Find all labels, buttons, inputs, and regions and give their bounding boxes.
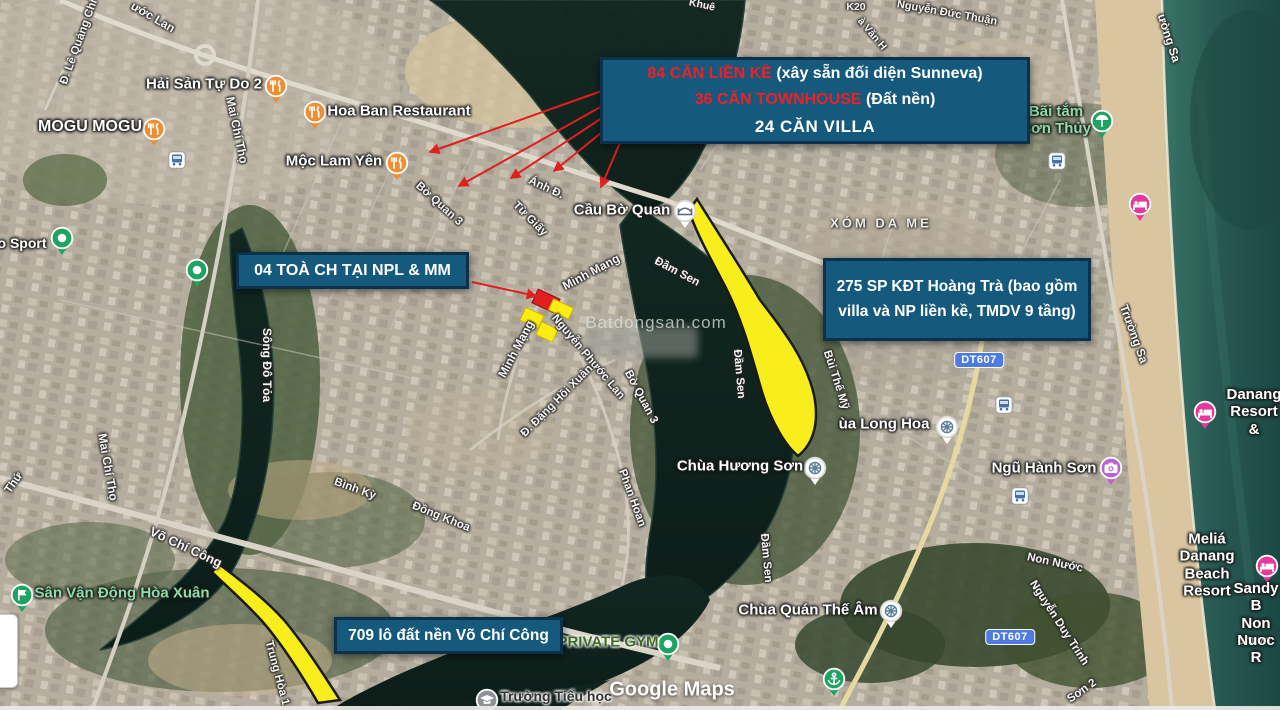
dharma-icon[interactable]	[935, 415, 959, 450]
image-edge-strip	[0, 706, 1280, 710]
bus-icon[interactable]	[168, 151, 186, 174]
bus-icon[interactable]	[1048, 152, 1066, 175]
hotel-icon[interactable]	[1128, 192, 1152, 227]
dharma-icon[interactable]	[803, 456, 827, 491]
road-label: à Văn H	[855, 15, 889, 52]
dharma-icon[interactable]	[879, 599, 903, 634]
road-label: Nguyễn Duy Trinh	[1027, 578, 1091, 667]
callout-text: 709 lô đất nền Võ Chí Công	[348, 627, 549, 645]
road-label: Bình Kỳ	[333, 476, 378, 502]
pin-icon[interactable]	[656, 632, 680, 667]
hotel-icon[interactable]	[1193, 400, 1217, 435]
callout-red-text: 84 CĂN LIỀN KỀ	[647, 65, 771, 82]
road-label: Bờ Quan 3	[413, 180, 465, 228]
road-label: Phan Hoan	[616, 468, 648, 529]
callout-line: 36 CĂN TOWNHOUSE (Đất nền)	[603, 87, 1027, 113]
road-label: Nguyễn Đức Thuận	[896, 0, 998, 28]
poi-label[interactable]: Hải Sản Tự Do 2	[146, 75, 262, 92]
callout-line: 84 CĂN LIỀN KỀ (xây sẵn đối diện Sunneva…	[603, 61, 1027, 87]
poi-label[interactable]: Mộc Lam Yên	[286, 152, 382, 169]
callout-vo-chi-cong: 709 lô đất nền Võ Chí Công	[334, 617, 563, 654]
road-label: Đ. Đặng Hồi Xuân	[519, 363, 596, 440]
road-label: K20	[846, 1, 865, 13]
callout-red-text: 36 CĂN TOWNHOUSE	[695, 91, 862, 108]
map-canvas[interactable]: Hải Sản Tự Do 2MOGU MOGUHoa Ban Restaura…	[0, 0, 1280, 710]
road-label: Võ Chí Công	[147, 524, 224, 571]
road-label: Đầm Sen	[758, 533, 774, 583]
restaurant-icon[interactable]	[303, 100, 327, 135]
poi-label[interactable]: Trường Tiểu học	[500, 688, 612, 704]
road-label: Bờ Quan 3	[622, 368, 660, 425]
harbor-icon[interactable]	[822, 667, 846, 702]
road-label: Mai Chí Thọ	[95, 432, 121, 501]
route-badge: DT607	[954, 352, 1004, 368]
bus-icon[interactable]	[1011, 487, 1029, 510]
road-label: Đầm Sen	[652, 255, 701, 289]
callout-text: 275 SP KĐT Hoàng Trà (bao gồm	[826, 275, 1088, 300]
callout-npl-mm: 04 TOÀ CH TẠI NPL & MM	[236, 252, 469, 289]
poi-label[interactable]: Chùa Hương Sơn	[677, 457, 803, 474]
road-label: ước Lan	[128, 0, 177, 35]
bus-icon[interactable]	[995, 396, 1013, 419]
road-label: ường Sa	[1155, 12, 1184, 64]
poi-label[interactable]: o Sport	[0, 235, 47, 251]
camera-icon[interactable]	[1099, 456, 1123, 491]
callout-hoang-tra: 275 SP KĐT Hoàng Trà (bao gồm villa và N…	[823, 258, 1091, 341]
poi-label[interactable]: Danang Resort &	[1226, 386, 1280, 438]
road-label: Khuê	[688, 0, 716, 14]
poi-label[interactable]: Sân Vận Động Hòa Xuân	[34, 584, 209, 601]
restaurant-icon[interactable]	[264, 74, 288, 109]
restaurant-icon[interactable]	[142, 117, 166, 152]
callout-lien-ke-villa: 84 CĂN LIỀN KỀ (xây sẵn đối diện Sunneva…	[600, 57, 1030, 144]
road-label: Sơn 2	[1065, 677, 1098, 705]
road-label: Trường Sa	[1117, 303, 1151, 365]
road-label: Bùi Thế Mỹ	[821, 349, 851, 411]
road-label: Từ Giấy	[510, 199, 549, 238]
google-maps-watermark: Google Maps	[609, 679, 735, 702]
poi-label[interactable]: Hoa Ban Restaurant	[327, 102, 470, 119]
poi-label[interactable]: Sandy B Non Nuoc R	[1233, 580, 1278, 666]
poi-label[interactable]: MOGU MOGU	[38, 118, 142, 136]
poi-label[interactable]: Ngũ Hành Sơn	[992, 459, 1097, 476]
road-label: Mai Chí Thọ	[223, 95, 251, 164]
road-label: Sông Đô Tỏa	[260, 328, 274, 402]
callout-white-text: (xây sẵn đối diện Sunneva)	[772, 65, 983, 82]
poi-label[interactable]: ùa Long Hoa	[839, 415, 930, 432]
road-label: Trung Hòa 1	[263, 639, 292, 706]
poi-label[interactable]: PRIVATE GYM	[557, 633, 658, 650]
pin-icon[interactable]	[50, 226, 74, 261]
callout-text: 04 TOÀ CH TẠI NPL & MM	[254, 262, 451, 280]
road-label: Minh Mạng	[560, 251, 622, 293]
road-label: Thứ	[3, 470, 26, 495]
road-label: Minh Mạng	[495, 318, 537, 380]
route-badge: DT607	[985, 629, 1035, 645]
road-label: Đồng Khoa	[410, 500, 471, 534]
callout-white-text: (Đất nền)	[862, 91, 936, 108]
road-label: Đầm Sen	[731, 349, 747, 399]
stadium-icon[interactable]	[10, 583, 34, 618]
poi-label[interactable]: Chùa Quán Thế Âm	[738, 601, 877, 618]
callout-text: villa và NP liền kề, TMDV 9 tầng)	[826, 300, 1088, 325]
beach-icon[interactable]	[1090, 109, 1114, 144]
corner-watermark: om.vn	[1238, 633, 1271, 647]
road-label: Đ. Lê Quảng Chí	[58, 0, 100, 86]
poi-label[interactable]: Bãi tắm Sơn Thủy	[1021, 103, 1091, 138]
restaurant-icon[interactable]	[385, 151, 409, 186]
area-label: XÓM DA ME	[830, 216, 932, 231]
callout-white-text: 24 CĂN VILLA	[603, 113, 1027, 140]
road-label: Ánh Đ.	[527, 175, 566, 202]
pin-icon[interactable]	[185, 258, 209, 293]
road-label: Non Nước	[1026, 551, 1084, 575]
poi-label[interactable]: Cầu Bờ Quan	[574, 201, 671, 218]
bridge-icon[interactable]	[673, 199, 697, 234]
